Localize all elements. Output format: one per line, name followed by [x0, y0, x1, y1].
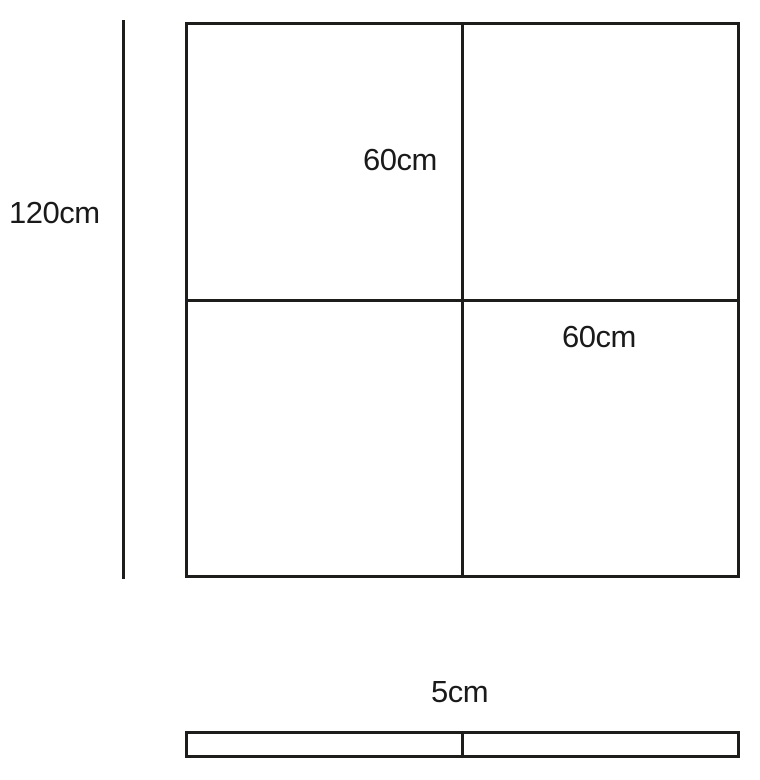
- dimension-diagram: 120cm 60cm 60cm 5cm: [0, 0, 760, 780]
- height-dimension-line: [122, 20, 125, 579]
- panel-horizontal-divider: [185, 299, 740, 302]
- side-view-bar-divider: [461, 731, 464, 758]
- depth-label: 5cm: [431, 673, 488, 710]
- top-panel-width-label: 60cm: [363, 141, 437, 178]
- height-label: 120cm: [9, 194, 100, 231]
- bottom-panel-width-label: 60cm: [562, 318, 636, 355]
